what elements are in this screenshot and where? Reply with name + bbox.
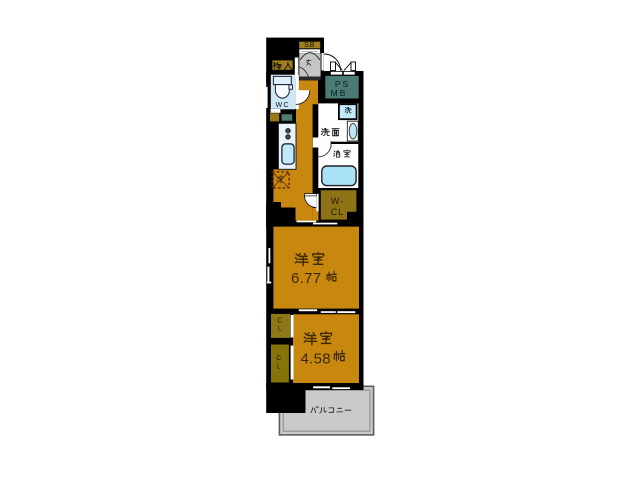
- svg-text:L: L: [277, 363, 281, 370]
- svg-text:6.77: 6.77: [291, 270, 321, 287]
- svg-text:4.58: 4.58: [301, 351, 331, 368]
- svg-text:SB: SB: [304, 42, 315, 49]
- svg-text:C: C: [277, 318, 282, 325]
- svg-text:MB: MB: [331, 88, 348, 98]
- svg-text:L: L: [278, 325, 282, 332]
- svg-text:C: C: [276, 355, 281, 362]
- svg-text:WC: WC: [275, 102, 290, 109]
- svg-text:CL: CL: [331, 207, 345, 217]
- svg-text:W-: W-: [331, 196, 344, 206]
